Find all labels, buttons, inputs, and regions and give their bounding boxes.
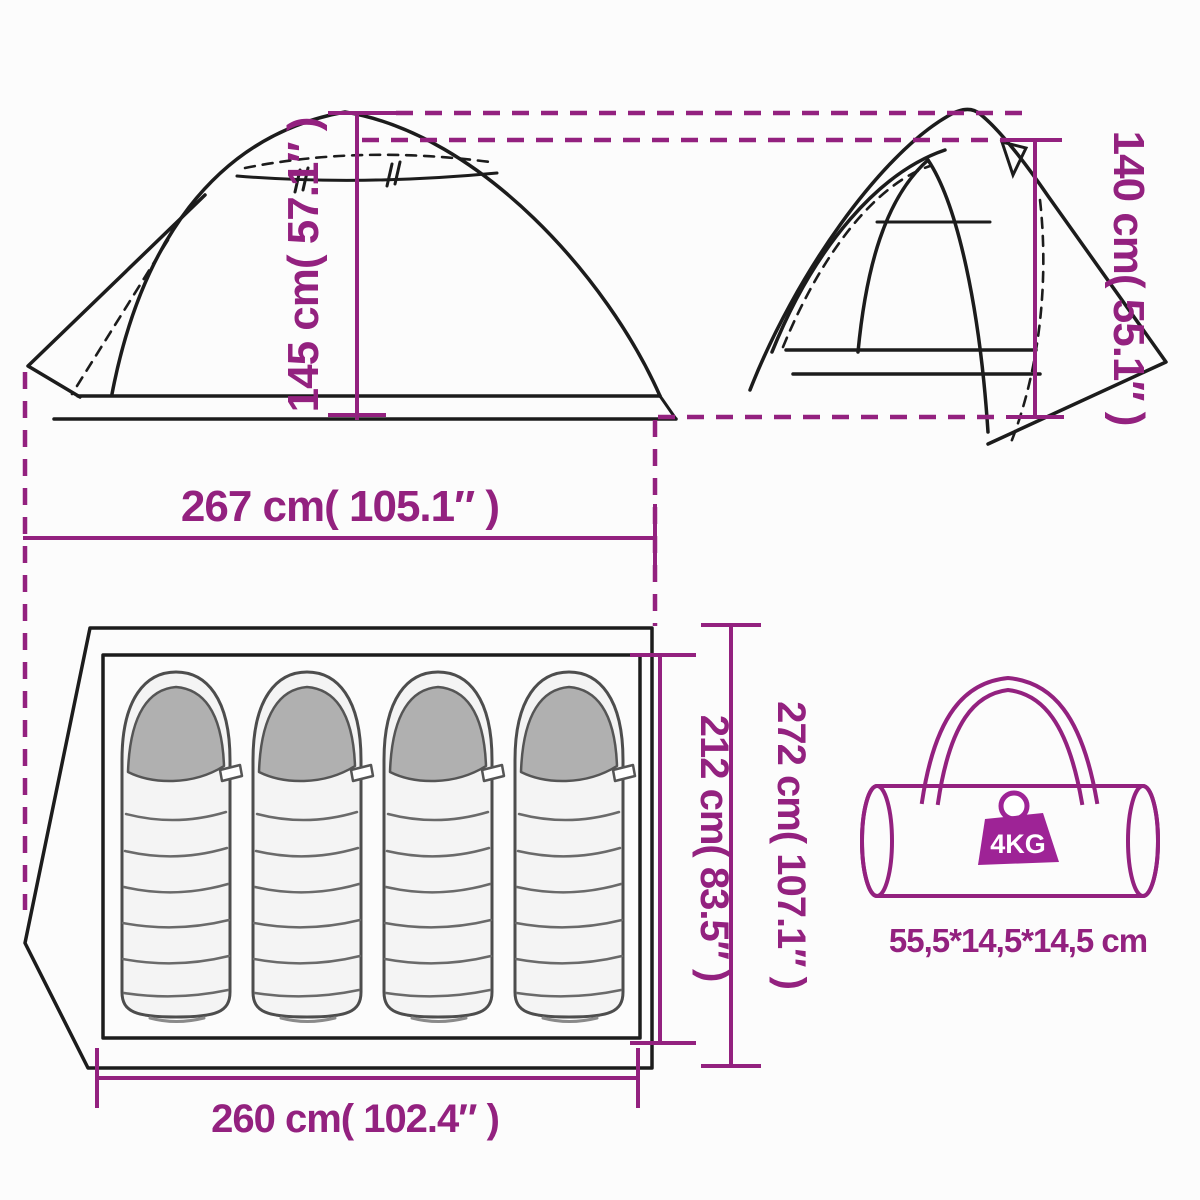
weight-icon: 4KG <box>978 793 1059 865</box>
front-tent-door-right <box>928 160 988 432</box>
sleeping-bag <box>384 672 504 1022</box>
side-tent-rainfly-edge <box>237 173 497 180</box>
side-tent-vestibule-hidden <box>72 240 168 394</box>
carry-bag: 4KG 55,5*14,5*14,5 cm <box>862 678 1158 959</box>
weight-label: 4KG <box>990 829 1046 859</box>
front-view-tent <box>750 109 1166 445</box>
side-width-label: 267 cm( 105.1″ ) <box>181 482 499 531</box>
sleeping-bags <box>122 672 635 1022</box>
outer-length-label: 272 cm( 107.1″ ) <box>769 701 813 989</box>
sleeping-bag <box>122 672 242 1022</box>
top-view-tent <box>25 628 652 1068</box>
front-tent-floor <box>786 222 1040 374</box>
front-tent-tab <box>1002 142 1026 175</box>
sleeping-bag <box>515 672 635 1022</box>
carry-bag-handle-outer <box>922 678 1097 802</box>
front-tent-hidden-left <box>783 166 930 347</box>
floor-width-label: 260 cm( 102.4″ ) <box>211 1097 499 1141</box>
tent-dimension-diagram: 145 cm( 57.1″ ) 140 cm( 55.1″ ) 267 cm( … <box>0 0 1200 1200</box>
front-tent-hidden-right <box>1010 200 1043 445</box>
carry-bag-right-cap <box>1128 786 1158 896</box>
dimension-floor-width: 260 cm( 102.4″ ) <box>97 1050 638 1141</box>
diagram-canvas: 145 cm( 57.1″ ) 140 cm( 55.1″ ) 267 cm( … <box>0 0 1200 1200</box>
dimension-inner-length: 212 cm( 83.5″ ) <box>632 655 736 1043</box>
front-tent-pole <box>772 150 945 352</box>
front-height-label: 140 cm( 55.1″ ) <box>1104 131 1153 426</box>
sleeping-bag <box>253 672 373 1022</box>
dimension-height-side: 145 cm( 57.1″ ) <box>279 113 394 418</box>
side-view-tent <box>28 112 676 419</box>
carry-bag-size-label: 55,5*14,5*14,5 cm <box>889 922 1147 959</box>
dimension-width-side: 267 cm( 105.1″ ) <box>25 482 655 578</box>
front-tent-outline <box>750 109 1166 444</box>
carry-bag-left-cap <box>862 786 892 896</box>
side-height-label: 145 cm( 57.1″ ) <box>279 118 328 413</box>
side-tent-dome <box>112 112 660 396</box>
